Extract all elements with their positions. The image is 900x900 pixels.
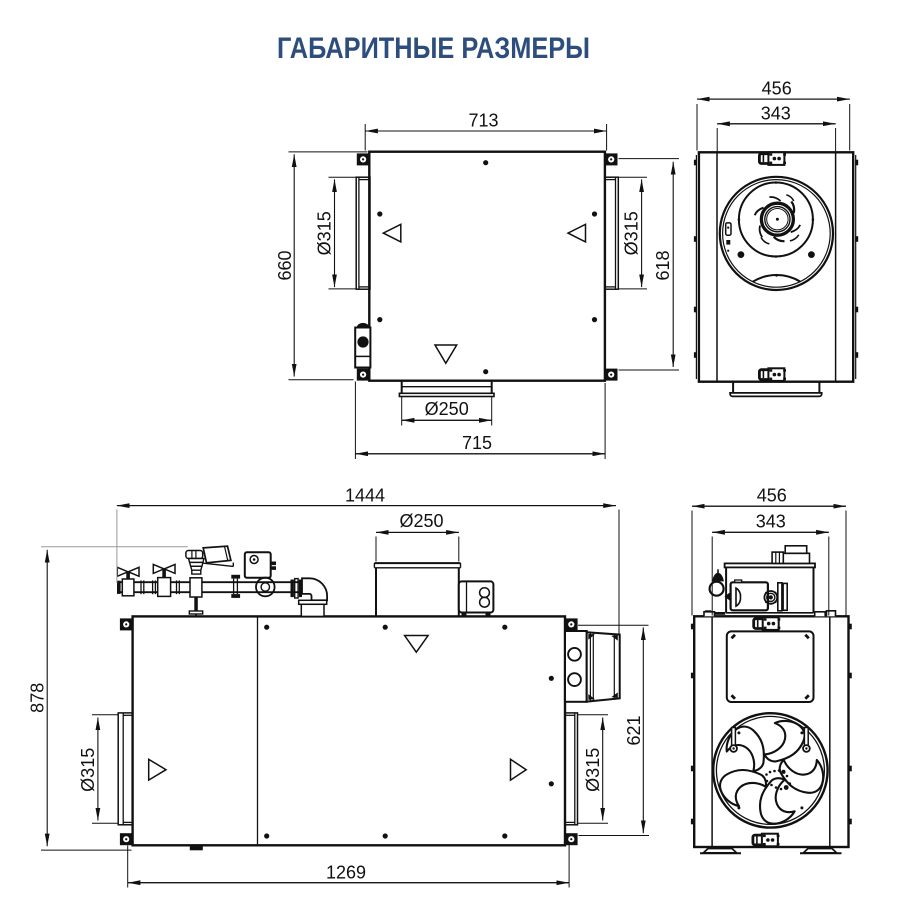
svg-text:1444: 1444 bbox=[345, 485, 385, 505]
svg-text:ГАБАРИТНЫЕ РАЗМЕРЫ: ГАБАРИТНЫЕ РАЗМЕРЫ bbox=[277, 32, 590, 65]
svg-text:Ø250: Ø250 bbox=[399, 511, 443, 531]
svg-text:Ø250: Ø250 bbox=[425, 399, 469, 419]
svg-text:660: 660 bbox=[275, 250, 295, 280]
svg-text:Ø315: Ø315 bbox=[622, 211, 642, 255]
svg-text:Ø315: Ø315 bbox=[583, 748, 603, 792]
svg-text:878: 878 bbox=[28, 683, 48, 713]
svg-text:343: 343 bbox=[756, 512, 786, 532]
svg-text:1269: 1269 bbox=[326, 863, 366, 883]
svg-text:621: 621 bbox=[624, 715, 644, 745]
svg-text:713: 713 bbox=[468, 111, 498, 131]
svg-text:456: 456 bbox=[762, 79, 792, 99]
svg-text:618: 618 bbox=[653, 250, 673, 280]
svg-text:343: 343 bbox=[761, 104, 791, 124]
svg-text:Ø315: Ø315 bbox=[315, 211, 335, 255]
svg-text:Ø315: Ø315 bbox=[78, 748, 98, 792]
svg-text:715: 715 bbox=[462, 433, 492, 453]
svg-text:456: 456 bbox=[757, 486, 787, 506]
